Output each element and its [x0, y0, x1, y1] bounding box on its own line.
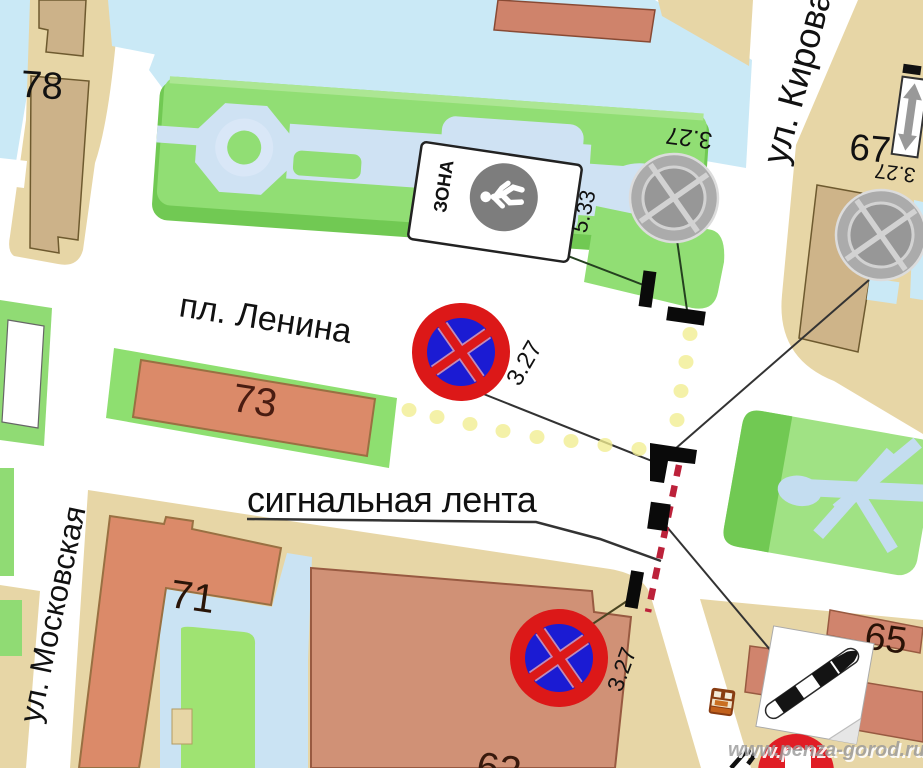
- svg-text:сигнальная лента: сигнальная лента: [247, 479, 538, 520]
- svg-text:71: 71: [167, 572, 217, 622]
- svg-text:www.penza-gorod.ru: www.penza-gorod.ru: [728, 739, 923, 761]
- svg-text:78: 78: [19, 64, 64, 109]
- svg-text:73: 73: [229, 376, 280, 426]
- svg-text:3.27: 3.27: [664, 121, 714, 153]
